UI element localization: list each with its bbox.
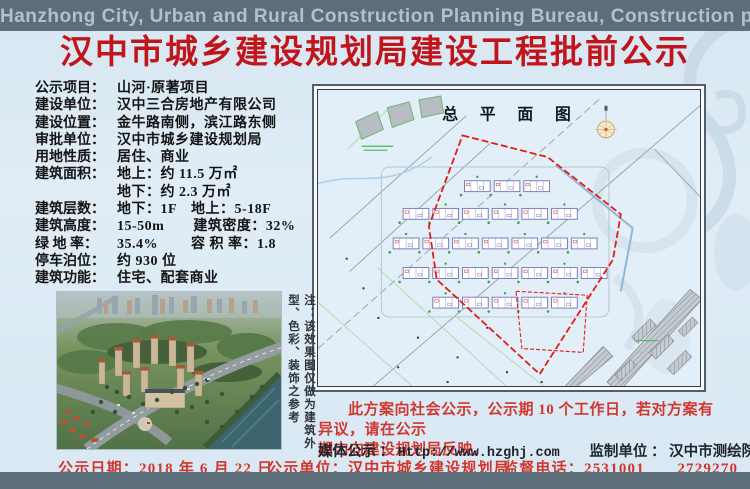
plan-stream bbox=[318, 157, 432, 184]
site-plan-map: 总 平 面 图 bbox=[312, 84, 706, 392]
info-row-floor-area-below: 地下：约 2.3 万㎡ bbox=[35, 184, 315, 201]
render-note: 注：该效果图仅做为建筑外型、色彩、装饰之参考 bbox=[285, 294, 317, 454]
notice-line-1: 此方案向社会公示，公示期 10 个工作日，若对方案有异议，请在公示 bbox=[318, 400, 718, 440]
page-title: 汉中市城乡建设规划局建设工程批前公示 bbox=[0, 31, 750, 73]
site-plan-inner: 总 平 面 图 bbox=[317, 89, 701, 387]
info-row-function: 建筑功能：住宅、配套商业 bbox=[35, 270, 315, 287]
info-row-developer: 建设单位：汉中三合房地产有限公司 bbox=[35, 97, 315, 114]
info-row-storeys: 建筑层数：地下：1F 地上：5-18F bbox=[35, 201, 315, 218]
notice-poster: Hanzhong City, Urban and Rural Construct… bbox=[0, 0, 750, 489]
info-row-location: 建设位置：金牛路南侧，滨江路东侧 bbox=[35, 115, 315, 132]
banner: Hanzhong City, Urban and Rural Construct… bbox=[0, 0, 750, 31]
info-row-approver: 审批单位：汉中市城乡建设规划局 bbox=[35, 132, 315, 149]
project-info-list: 公示项目：山河·原著项目 建设单位：汉中三合房地产有限公司 建设位置：金牛路南侧… bbox=[35, 80, 315, 288]
plan-green-label-marks bbox=[362, 146, 394, 150]
aerial-render-image bbox=[57, 292, 281, 449]
info-row-project: 公示项目：山河·原著项目 bbox=[35, 80, 315, 97]
banner-text: Hanzhong City, Urban and Rural Construct… bbox=[0, 6, 750, 27]
footer-row: 公示日期：2018 年 6 月 22 日 公示单位：汉中市城乡建设规划局 监督电… bbox=[0, 457, 750, 473]
site-plan-title: 总 平 面 图 bbox=[442, 105, 580, 124]
media-row: 媒体公示 ： Http://www.hzghj.com 监制单位 ： 汉中市测绘… bbox=[318, 440, 718, 458]
info-row-floor-area-above: 建筑面积：地上：约 11.5 万㎡ bbox=[35, 166, 315, 183]
site-plan-drawing: 总 平 面 图 bbox=[318, 90, 700, 386]
plan-buildings bbox=[388, 176, 607, 313]
info-row-parking: 停车泊位：约 930 位 bbox=[35, 253, 315, 270]
info-row-green-plot-ratio: 绿 地 率：35.4% 容 积 率：1.8 bbox=[35, 236, 315, 253]
plan-adjacent-parcels bbox=[356, 96, 444, 139]
compass-icon bbox=[595, 106, 617, 138]
plan-red-boundary bbox=[429, 135, 621, 374]
aerial-render-drawing bbox=[57, 292, 281, 449]
info-row-height-density: 建筑高度：15-50m 建筑密度：32% bbox=[35, 218, 315, 235]
bottom-bar bbox=[0, 472, 750, 489]
info-row-land-use: 用地性质：居住、商业 bbox=[35, 149, 315, 166]
